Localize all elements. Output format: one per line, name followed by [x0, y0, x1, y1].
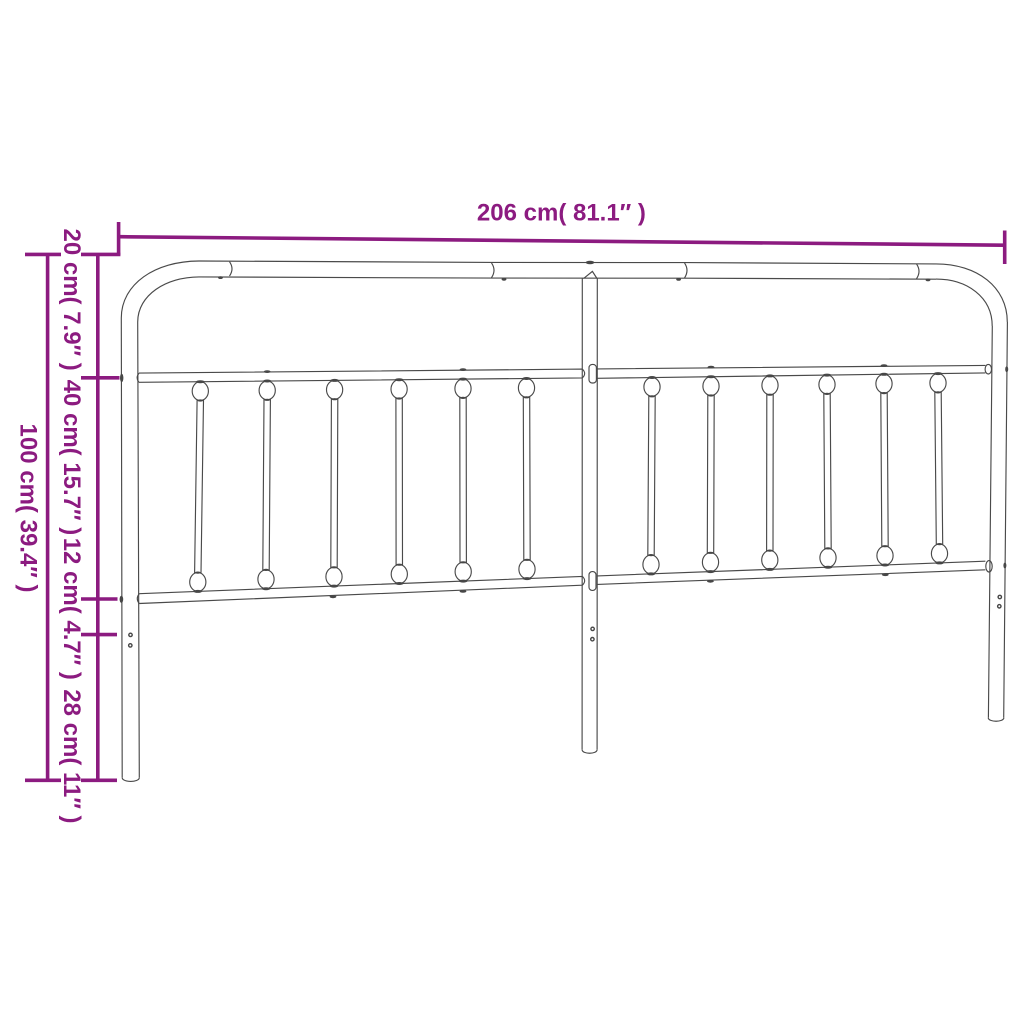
svg-text:206 cm( 81.1″ ): 206 cm( 81.1″ ) — [477, 200, 646, 227]
svg-text:40 cm( 15.7″ ): 40 cm( 15.7″ ) — [58, 380, 85, 536]
svg-text:28 cm( 11″ ): 28 cm( 11″ ) — [58, 689, 85, 823]
svg-text:20 cm( 7.9″ ): 20 cm( 7.9″ ) — [58, 228, 85, 370]
svg-text:12 cm( 4.7″ ): 12 cm( 4.7″ ) — [58, 538, 85, 680]
svg-text:100 cm( 39.4″ ): 100 cm( 39.4″ ) — [15, 424, 42, 593]
